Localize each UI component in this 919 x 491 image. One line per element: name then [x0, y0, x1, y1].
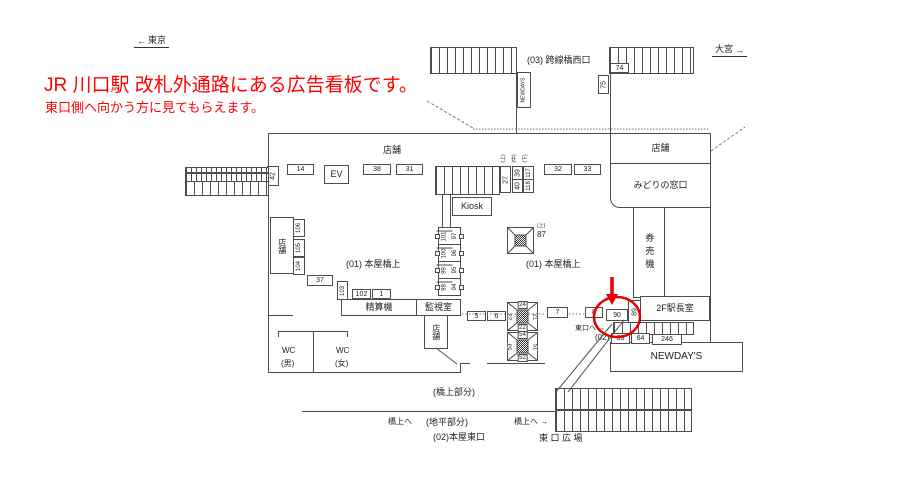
wc-wall-tick-left	[278, 331, 279, 337]
ad-board-38: 38	[363, 164, 391, 175]
position-upper-label: (上)	[502, 154, 507, 162]
ad-board-1: 1	[372, 289, 391, 299]
shop-right-room: 店舗	[610, 133, 711, 164]
midori-window-label: みどりの窓口	[633, 180, 687, 191]
overpass-west-exit-label: (03) 跨線橋西口	[527, 55, 591, 65]
staircase-hall-to-overpass	[435, 166, 500, 195]
pillar-ads-24: 24 22 23 21	[507, 302, 538, 331]
ad-board-105: 105	[293, 239, 305, 257]
ad-53-label: 53	[507, 343, 513, 350]
ad-board-27: 27	[500, 166, 511, 193]
ad-95-label: 95	[447, 265, 463, 275]
ad-board-33: 33	[574, 164, 601, 175]
ad-board-104: 104	[293, 257, 305, 275]
corridor-wall-right	[610, 47, 611, 133]
shop-right-label: 店舗	[651, 143, 669, 154]
highlight-arrow-head	[606, 294, 618, 305]
honya-east-exit-label: (02)本屋東口	[433, 432, 485, 442]
ad-87-position-label: (上)	[537, 224, 545, 229]
ad-board-89: 89	[628, 300, 641, 323]
zone-02-label: (02)	[595, 333, 609, 342]
ad-board-74-label: 74	[616, 65, 624, 72]
ad-board-39-label: 39	[514, 169, 521, 177]
ad-21-label: 21	[532, 313, 538, 320]
honya-bridge-left-label: (01) 本屋橋上	[346, 259, 401, 269]
wc-women-label: WC	[336, 346, 349, 355]
east-plaza-label: 東 口 広 場	[539, 433, 583, 443]
ad-board-1-label: 1	[380, 291, 384, 298]
ad-24-label: 24	[517, 301, 528, 309]
wall-jog-horizontal-a	[460, 363, 470, 364]
ad-board-40: 40	[512, 179, 523, 193]
kiosk-wall-a	[442, 195, 443, 227]
monitoring-room: 監視室	[416, 299, 461, 316]
ad-board-102-label: 102	[356, 291, 368, 298]
wall-segment-left	[268, 315, 293, 316]
pillar-ads-98-94: 9894	[438, 278, 461, 296]
wc-women-sub-label: (女)	[335, 359, 348, 368]
kiosk-label: Kiosk	[461, 201, 483, 212]
ad-board-104-label: 104	[296, 261, 302, 271]
escalator-west-upper	[185, 167, 269, 182]
east-exit-stair-upper	[555, 388, 692, 410]
ground-level-line	[302, 411, 556, 412]
ad-board-75: 75	[598, 75, 609, 94]
elevator-label: EV	[330, 170, 342, 179]
ad-board-118: 118	[523, 179, 534, 193]
ad-board-42-label: 42	[270, 172, 277, 180]
ad-board-32-label: 32	[554, 166, 562, 173]
ad-board-246-label: 246	[661, 336, 673, 343]
ad-board-89-label: 89	[631, 308, 638, 316]
to-bridge-right-label: 橋上へ →	[514, 417, 548, 426]
arrow-right-icon: →	[735, 45, 744, 55]
pillar-ads-100-96: 10096	[438, 244, 461, 262]
ad-51-label: 51	[532, 343, 538, 350]
shop-corner-diagonal	[436, 348, 457, 364]
bridge-part-label: (橋上部分)	[433, 387, 475, 397]
pillar-ads-54: 54 52 53 51	[507, 332, 538, 361]
shop-center-room: 店舗	[424, 315, 448, 349]
ad-board-5-label: 5	[475, 313, 479, 320]
ad-board-7: 7	[547, 307, 568, 318]
ad-board-14: 14	[287, 164, 314, 175]
ground-part-label: (地平部分)	[426, 417, 468, 427]
ad-board-7-label: 7	[556, 309, 560, 316]
ad-board-64-label: 64	[637, 335, 645, 342]
newdays-kiosk-overpass: NEWDAYS	[517, 72, 531, 108]
note-line1: JR 川口駅 改札外通路にある広告看板です。	[44, 70, 418, 97]
ad-board-37: 37	[307, 275, 333, 286]
stationmaster-label: 2F駅長室	[656, 303, 694, 314]
elevator: EV	[324, 165, 349, 184]
ad-54-label: 54	[517, 331, 528, 339]
ad-board-246: 246	[652, 334, 682, 345]
note-line2: 東口側へ向かう方に見てもらえます。	[45, 97, 264, 116]
ad-board-8: 8	[585, 307, 603, 318]
ad-board-90-highlighted: 90	[606, 309, 628, 321]
direction-tokyo-label: 東京	[148, 33, 166, 46]
ticket-machines-room: 券売機	[633, 207, 665, 298]
newdays-kiosk-overpass-label: NEWDAYS	[522, 78, 527, 103]
overpass-edge-dashed-left	[427, 101, 473, 128]
fare-adjustment-room: 精算機	[341, 299, 417, 316]
wc-men-sub-label: (男)	[281, 359, 294, 368]
ad-board-106-label: 106	[296, 223, 302, 233]
shop-left-room: 店舗	[270, 217, 294, 274]
ad-board-38-label: 38	[373, 166, 381, 173]
newdays-store-label: NEWDAY'S	[651, 351, 703, 363]
ad-board-27-label: 27	[502, 176, 509, 184]
pillar-ads-99-95: 9995	[438, 261, 461, 279]
ad-board-90-label: 90	[613, 312, 621, 319]
pillar-ads-101-97: 10197	[438, 227, 461, 245]
hall-bottom-wall	[268, 372, 461, 373]
wall-jog-horizontal-b	[487, 363, 545, 364]
direction-omiya: 大宮 →	[712, 42, 747, 57]
shop-center-label: 店舗	[431, 324, 441, 340]
ad-board-75-label: 75	[600, 81, 607, 89]
east-exit-stair-lower	[555, 410, 692, 432]
ad-board-63-label: 63	[617, 335, 625, 342]
ad-board-64: 64	[631, 333, 650, 344]
station-floor-plan: JR 川口駅 改札外通路にある広告看板です。 東口側へ向かう方に見てもらえます。…	[0, 0, 919, 491]
ad-board-33-label: 33	[584, 166, 592, 173]
ad-board-117: 117	[523, 166, 534, 180]
ad-board-37-label: 37	[316, 277, 324, 284]
to-east-exit-label: 東口へ →	[575, 325, 605, 333]
ad-board-14-label: 14	[297, 166, 305, 173]
ad-board-106: 106	[293, 219, 305, 237]
ad-board-8-label: 8	[592, 309, 596, 316]
ad-board-40-label: 40	[514, 182, 521, 190]
monitoring-room-label: 監視室	[425, 302, 452, 313]
ad-board-105-label: 105	[296, 243, 302, 253]
stationmaster-room: 2F駅長室	[640, 296, 710, 321]
newdays-store: NEWDAY'S	[610, 342, 743, 372]
wc-wall-tick-right	[347, 331, 348, 337]
fare-adjustment-label: 精算機	[365, 302, 392, 313]
direction-omiya-label: 大宮	[715, 42, 733, 55]
ad-board-103: 103	[337, 281, 348, 300]
wc-partition-wall	[313, 331, 314, 373]
direction-tokyo: ← 東京	[134, 33, 169, 48]
kiosk-wall-b	[450, 195, 451, 227]
shop-left-label: 店舗	[277, 238, 287, 254]
pillar-ad-87	[507, 227, 534, 254]
ad-board-63: 63	[611, 333, 630, 344]
kiosk: Kiosk	[452, 197, 492, 216]
midori-window-room: みどりの窓口	[610, 163, 711, 208]
ad-97-label: 97	[447, 231, 463, 241]
overpass-edge-dashed-right	[711, 127, 745, 151]
ad-board-74: 74	[610, 63, 629, 73]
ad-96-label: 96	[447, 248, 463, 258]
ad-52-label: 52	[517, 354, 528, 362]
ad-board-39: 39	[512, 166, 523, 180]
ad-board-103-label: 103	[340, 285, 346, 295]
ad-board-102: 102	[352, 289, 371, 299]
position-lower-label: (下)	[524, 154, 529, 162]
wall-jog-vertical	[460, 363, 461, 373]
staircase-overpass-left	[430, 47, 517, 74]
ad-87-label: 87	[537, 230, 546, 239]
ad-board-32: 32	[544, 164, 572, 175]
escalator-west-lower	[185, 181, 269, 196]
ad-23-label: 23	[507, 313, 513, 320]
ad-board-6-label: 6	[495, 313, 499, 320]
ad-94-label: 94	[447, 282, 463, 292]
arrow-left-icon: ←	[137, 36, 146, 46]
ad-board-6: 6	[487, 311, 506, 321]
to-bridge-left-label: 橋上へ	[388, 417, 412, 426]
wc-men-label: WC	[282, 346, 295, 355]
ad-board-117-label: 117	[526, 168, 532, 178]
position-middle-label: (中)	[513, 154, 518, 162]
ticket-machines-label: 券売機	[644, 233, 655, 272]
pillar-87-graphic	[507, 227, 534, 254]
ad-board-31-label: 31	[406, 166, 414, 173]
ad-board-118-label: 118	[526, 181, 532, 191]
ad-board-5: 5	[467, 311, 486, 321]
honya-bridge-right-label: (01) 本屋橋上	[526, 259, 581, 269]
shop-top-label: 店舗	[383, 145, 401, 155]
ad-board-31: 31	[396, 164, 423, 175]
